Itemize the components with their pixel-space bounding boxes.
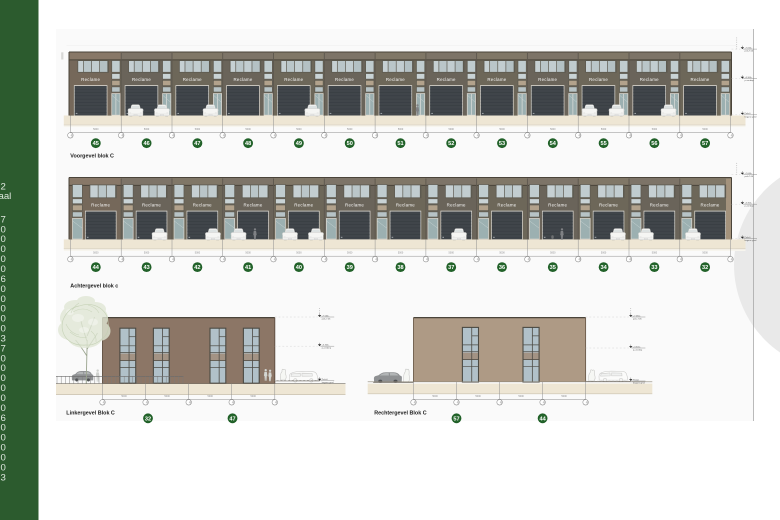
svg-text:Reclame: Reclame — [497, 203, 516, 208]
svg-text:Reclame: Reclame — [437, 77, 456, 82]
svg-text:34: 34 — [600, 265, 607, 271]
svg-text:5000: 5000 — [93, 128, 99, 131]
svg-text:49: 49 — [296, 141, 302, 147]
svg-text:5000: 5000 — [550, 252, 556, 255]
svg-text:52: 52 — [448, 141, 454, 147]
svg-text:5000: 5000 — [652, 252, 658, 255]
svg-text:begane grnd: begane grnd — [322, 381, 335, 384]
svg-text:54: 54 — [550, 141, 557, 147]
svg-text:begane grnd: begane grnd — [633, 382, 646, 385]
svg-text:5000: 5000 — [296, 252, 302, 255]
svg-text:Reclame: Reclame — [599, 203, 618, 208]
svg-text:Peil=0: Peil=0 — [322, 379, 329, 381]
svg-text:Reclame: Reclame — [447, 203, 466, 208]
svg-text:Reclame: Reclame — [701, 203, 720, 208]
svg-text:p+verdiep: p+verdiep — [322, 347, 332, 350]
svg-text:3: 3 — [1, 472, 6, 483]
svg-text:32: 32 — [145, 416, 151, 422]
svg-text:Reclame: Reclame — [243, 203, 262, 208]
svg-text:5000: 5000 — [195, 128, 201, 131]
svg-text:5000: 5000 — [601, 252, 607, 255]
svg-text:5000: 5000 — [245, 252, 251, 255]
svg-text:48: 48 — [245, 141, 251, 147]
svg-text:5000: 5000 — [561, 395, 567, 398]
svg-text:51: 51 — [397, 141, 403, 147]
svg-text:peil+7.06: peil+7.06 — [322, 319, 331, 321]
svg-text:42: 42 — [194, 265, 200, 271]
svg-text:Achtergevel blok c: Achtergevel blok c — [70, 283, 118, 289]
svg-text:57: 57 — [702, 141, 708, 147]
svg-text:Reclame: Reclame — [548, 203, 567, 208]
svg-text:+3.300+: +3.300+ — [745, 77, 753, 79]
svg-text:Reclame: Reclame — [142, 203, 161, 208]
svg-text:5000: 5000 — [398, 252, 404, 255]
svg-text:53: 53 — [499, 141, 505, 147]
svg-text:peil+7.06: peil+7.06 — [633, 319, 642, 321]
svg-text:Voorgevel blok C: Voorgevel blok C — [70, 154, 114, 160]
svg-text:5000: 5000 — [398, 128, 404, 131]
svg-text:47: 47 — [194, 141, 200, 147]
svg-text:5000: 5000 — [499, 252, 505, 255]
svg-text:Linkergevel Blok C: Linkergevel Blok C — [66, 411, 115, 417]
svg-text:+7.060+: +7.060+ — [633, 315, 641, 317]
svg-text:p+verdiep: p+verdiep — [745, 205, 755, 208]
svg-text:Reclame: Reclame — [335, 77, 354, 82]
svg-text:Reclame: Reclame — [538, 77, 557, 82]
svg-text:+7.060+: +7.060+ — [745, 48, 753, 50]
svg-text:+7.060+: +7.060+ — [322, 315, 330, 317]
svg-text:Reclame: Reclame — [386, 77, 405, 82]
svg-text:5000: 5000 — [347, 128, 353, 131]
svg-text:37: 37 — [448, 265, 454, 271]
svg-text:5000: 5000 — [449, 252, 455, 255]
svg-text:5000: 5000 — [144, 128, 150, 131]
svg-text:Reclame: Reclame — [183, 77, 202, 82]
svg-text:38: 38 — [397, 265, 403, 271]
svg-text:5000: 5000 — [601, 128, 607, 131]
svg-text:5000: 5000 — [499, 128, 505, 131]
svg-text:Reclame: Reclame — [345, 203, 364, 208]
svg-text:Reclame: Reclame — [132, 77, 151, 82]
svg-text:p+verdiep: p+verdiep — [745, 79, 755, 82]
svg-text:5000: 5000 — [702, 128, 708, 131]
svg-text:+3.300+: +3.300+ — [633, 346, 641, 348]
svg-text:aal: aal — [0, 191, 11, 202]
svg-text:Peil=0: Peil=0 — [745, 113, 752, 115]
svg-text:5000: 5000 — [195, 252, 201, 255]
svg-text:46: 46 — [143, 141, 149, 147]
svg-text:Reclame: Reclame — [233, 77, 252, 82]
svg-text:5000: 5000 — [296, 128, 302, 131]
svg-text:Reclame: Reclame — [91, 203, 110, 208]
svg-text:begane grnd: begane grnd — [745, 115, 758, 118]
svg-text:5000: 5000 — [475, 395, 481, 398]
svg-text:5000: 5000 — [518, 395, 524, 398]
svg-text:Reclame: Reclame — [589, 77, 608, 82]
svg-text:Reclame: Reclame — [487, 77, 506, 82]
svg-text:50: 50 — [347, 141, 353, 147]
svg-text:Rechtergevel Blok C: Rechtergevel Blok C — [374, 411, 427, 417]
svg-text:Reclame: Reclame — [691, 77, 710, 82]
svg-text:41: 41 — [245, 265, 251, 271]
svg-text:+3.300+: +3.300+ — [322, 345, 330, 347]
svg-text:+7.060+: +7.060+ — [745, 173, 753, 175]
svg-text:Peil=0: Peil=0 — [745, 237, 752, 239]
svg-text:56: 56 — [651, 141, 657, 147]
svg-text:39: 39 — [347, 265, 353, 271]
svg-text:5000: 5000 — [550, 128, 556, 131]
svg-text:5000: 5000 — [652, 128, 658, 131]
svg-text:35: 35 — [550, 265, 556, 271]
svg-text:5000: 5000 — [144, 252, 150, 255]
svg-text:33: 33 — [651, 265, 657, 271]
svg-text:peil+7.06: peil+7.06 — [745, 176, 754, 178]
svg-text:5000: 5000 — [245, 128, 251, 131]
svg-text:+3.300+: +3.300+ — [745, 203, 753, 205]
svg-text:44: 44 — [93, 265, 100, 271]
svg-text:Peil=0: Peil=0 — [633, 379, 640, 381]
svg-text:Reclame: Reclame — [81, 77, 100, 82]
svg-text:32: 32 — [702, 265, 708, 271]
svg-text:Reclame: Reclame — [294, 203, 313, 208]
svg-text:5000: 5000 — [164, 395, 170, 398]
svg-text:55: 55 — [600, 141, 606, 147]
svg-text:43: 43 — [143, 265, 149, 271]
svg-text:begane grnd: begane grnd — [745, 239, 758, 242]
svg-text:p+verdiep: p+verdiep — [633, 349, 643, 352]
svg-text:44: 44 — [539, 416, 546, 422]
svg-text:45: 45 — [93, 141, 99, 147]
svg-text:Reclame: Reclame — [640, 77, 659, 82]
svg-text:40: 40 — [296, 265, 302, 271]
svg-text:5000: 5000 — [702, 252, 708, 255]
svg-text:5000: 5000 — [93, 252, 99, 255]
svg-text:Reclame: Reclame — [396, 203, 415, 208]
svg-text:5000: 5000 — [251, 395, 257, 398]
svg-text:Reclame: Reclame — [284, 77, 303, 82]
svg-text:47: 47 — [229, 416, 235, 422]
svg-text:5000: 5000 — [121, 395, 127, 398]
svg-text:peil+7.06: peil+7.06 — [745, 51, 754, 53]
svg-text:5000: 5000 — [347, 252, 353, 255]
svg-text:57: 57 — [453, 416, 459, 422]
svg-text:5000: 5000 — [449, 128, 455, 131]
svg-text:Reclame: Reclame — [193, 203, 212, 208]
svg-text:36: 36 — [499, 265, 505, 271]
svg-text:5000: 5000 — [432, 395, 438, 398]
svg-text:5000: 5000 — [208, 395, 214, 398]
svg-text:Reclame: Reclame — [650, 203, 669, 208]
